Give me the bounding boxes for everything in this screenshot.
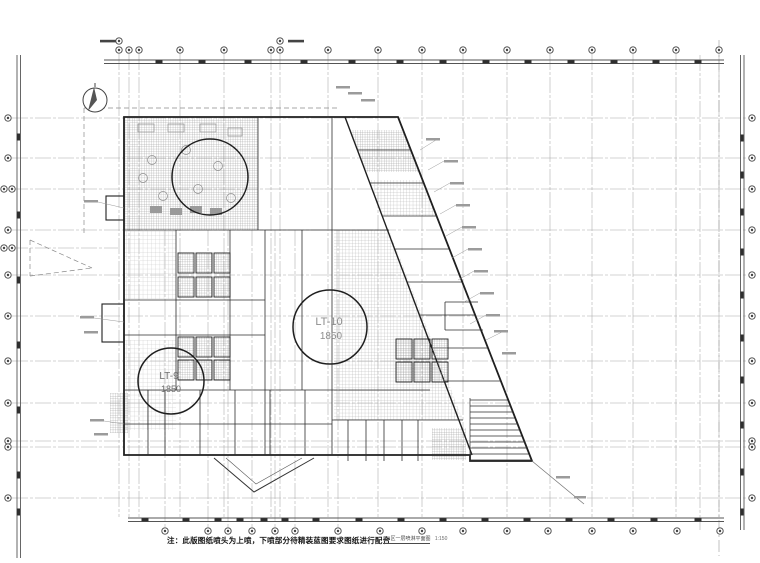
sprinkler-note-text: 注：此版图纸喷头为上喷，下喷部分待精装蓝图要求图纸进行配合 — [167, 535, 390, 546]
hatch-bottomleft-dark — [110, 393, 128, 433]
hatch-band-room-1 — [350, 130, 420, 172]
hatch-band-room-2 — [369, 180, 437, 216]
stair-treads — [470, 398, 532, 461]
datum-bar-markers — [100, 40, 304, 43]
sheet-title-text: 西Ⅱ区一层喷淋平面图 — [383, 536, 430, 544]
canopy-outline — [214, 458, 314, 492]
svg-text:LT-9: LT-9 — [159, 371, 179, 382]
sheet-title-scale: 1:150 — [435, 536, 448, 542]
drawing-sheet: LT-101850LT-91850 注：此版图纸喷头为上喷，下喷部分待精装蓝图要… — [0, 0, 760, 563]
svg-text:LT-10: LT-10 — [315, 316, 342, 328]
floor-plan-canvas: LT-101850LT-91850 — [0, 0, 760, 563]
wall-bays — [102, 196, 124, 342]
svg-text:1850: 1850 — [320, 331, 343, 342]
svg-text:1850: 1850 — [161, 384, 181, 394]
hatch-topleft-block — [124, 118, 258, 230]
sheet-title: 西Ⅱ区一层喷淋平面图 1:150 — [383, 535, 447, 542]
hatch-upperleft-band — [124, 231, 176, 299]
